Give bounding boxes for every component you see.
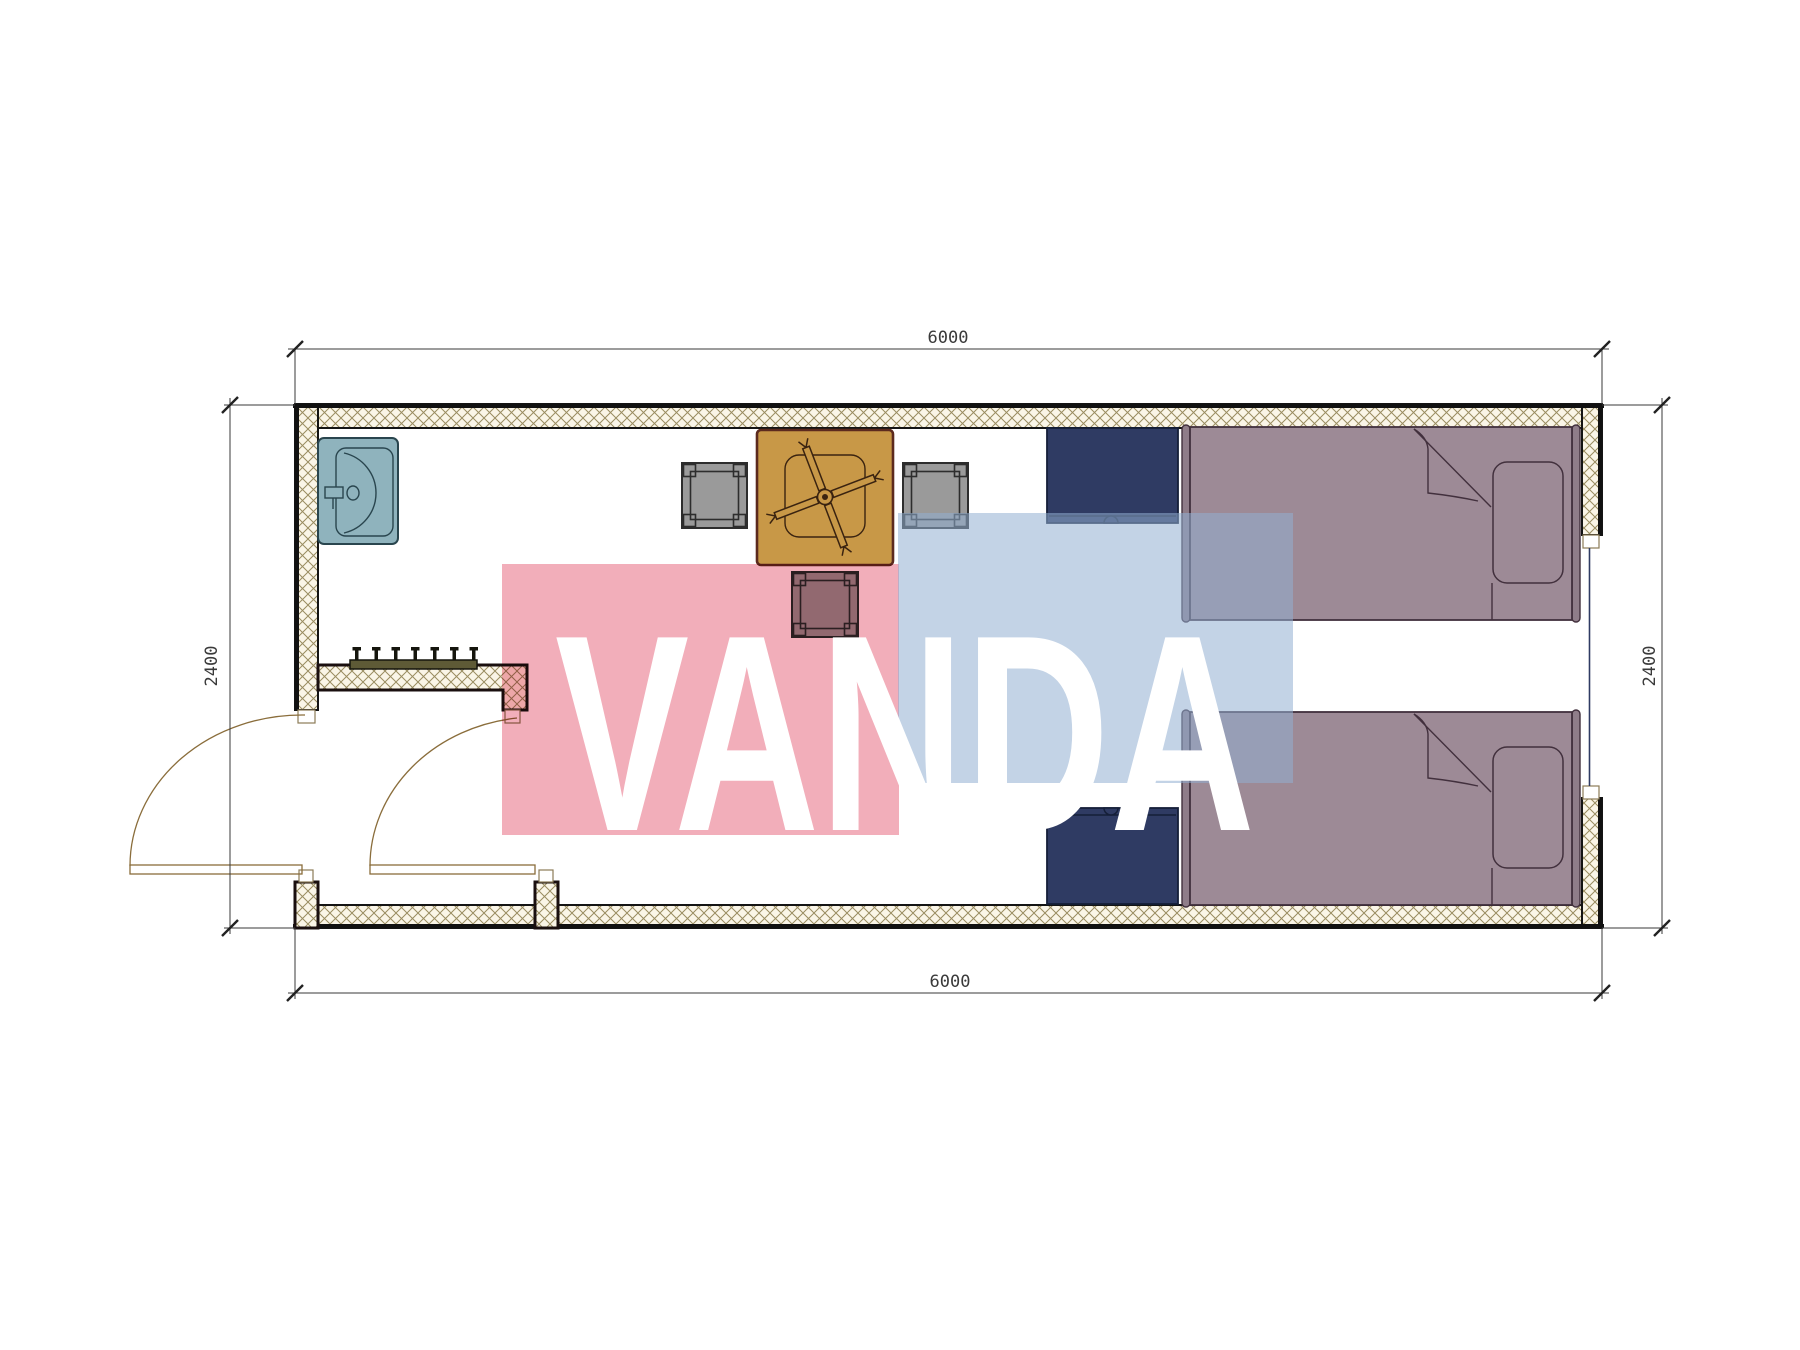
sink (318, 438, 398, 544)
door-swing-arc (370, 718, 517, 866)
coat-rack (350, 647, 478, 669)
partition-wall-body (318, 665, 527, 710)
coat-rack-peg-cap (392, 647, 401, 651)
chair-seat (682, 463, 747, 528)
floor-plan-drawing: 6000 6000 2400 2400 (0, 0, 1800, 1350)
watermark-text: VANDA (555, 578, 1255, 890)
dimension-right: 2400 (1602, 397, 1670, 936)
sink-faucet (325, 487, 343, 498)
coat-rack-peg-cap (372, 647, 381, 651)
fan-hub-center (822, 494, 828, 500)
coat-rack-peg-cap (450, 647, 459, 651)
dimension-top: 6000 (287, 328, 1610, 404)
nightstand-body (1047, 428, 1178, 523)
entry-door-left (130, 715, 305, 874)
pillow (1493, 462, 1563, 583)
dimension-label-left: 2400 (202, 646, 222, 687)
dimension-label-bottom: 6000 (930, 972, 971, 992)
window (1583, 535, 1599, 799)
floor-plan-canvas: 6000 6000 2400 2400 (0, 0, 1800, 1350)
coat-rack-bar (350, 660, 477, 669)
coat-rack-peg-cap (431, 647, 440, 651)
coat-rack-peg-cap (353, 647, 362, 651)
bed-headboard (1572, 425, 1580, 622)
coat-rack-peg-cap (411, 647, 420, 651)
door-leaf (130, 865, 302, 874)
watermark: VANDA (502, 513, 1293, 890)
left-wall-end-jamb (298, 710, 315, 723)
interior-partition-wall (318, 665, 527, 723)
window-jamb-bottom (1583, 786, 1599, 799)
pillow (1493, 747, 1563, 868)
dimension-label-right: 2400 (1640, 646, 1660, 687)
door-jamb-pillar-left (295, 882, 318, 928)
chair-left (682, 463, 747, 528)
door-swing-arc (130, 715, 305, 866)
dining-table (757, 430, 893, 565)
nightstand-top (1047, 428, 1178, 523)
dimension-bottom: 6000 (287, 928, 1610, 1001)
coat-rack-peg-cap (470, 647, 479, 651)
door-jamb-cap-right (539, 870, 553, 882)
door-jamb-cap-left (299, 870, 313, 882)
dimension-label-top: 6000 (928, 328, 969, 348)
window-jamb-top (1583, 535, 1599, 548)
dimension-left: 2400 (202, 397, 295, 936)
door-leaf (370, 865, 535, 874)
bed-headboard (1572, 710, 1580, 907)
